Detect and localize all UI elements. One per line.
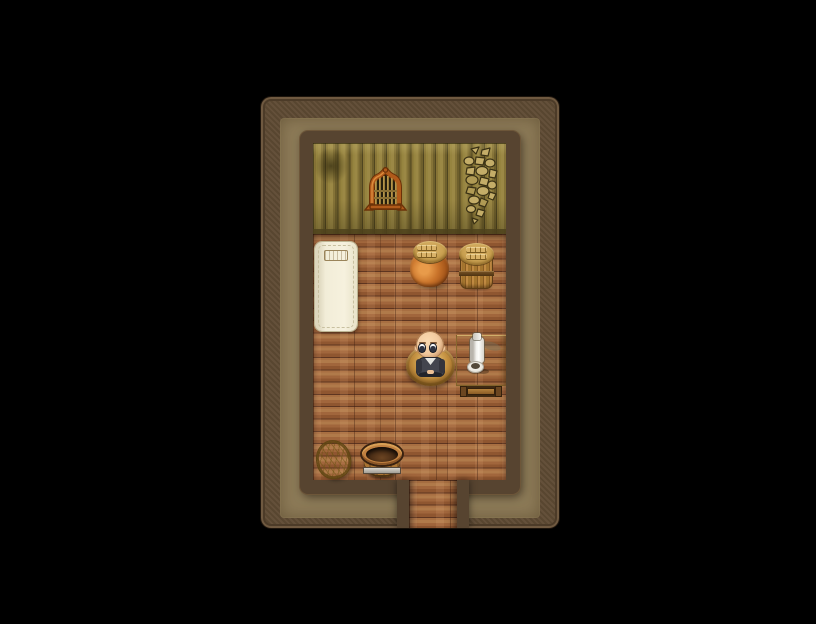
table-leg	[460, 386, 467, 397]
wooden-tub[interactable]	[362, 443, 402, 479]
tub-metal-band	[364, 468, 400, 473]
white-bottle[interactable]	[470, 337, 484, 363]
wall-crack-icon	[459, 146, 499, 226]
clay-pot[interactable]	[410, 241, 451, 291]
bowl-opening	[471, 363, 480, 369]
pot-lid-handle	[417, 245, 437, 250]
character-arm	[416, 359, 422, 373]
table-front	[460, 386, 502, 397]
table-stretcher	[468, 389, 494, 394]
character-body	[416, 357, 445, 377]
door-jamb-right	[457, 480, 469, 528]
bed[interactable]	[315, 242, 357, 331]
door-jamb-left	[397, 480, 409, 528]
character-eye	[430, 344, 436, 352]
white-bowl[interactable]	[467, 361, 484, 373]
doorway-floor[interactable]	[409, 480, 457, 528]
game-screen[interactable]	[0, 0, 816, 624]
character-hands	[427, 370, 434, 374]
tub-interior	[366, 447, 398, 462]
barrel[interactable]	[459, 243, 494, 291]
bottle-cap	[473, 333, 481, 340]
pot-lid-handle	[417, 252, 437, 257]
character-collar	[425, 358, 436, 365]
wall-stain	[314, 148, 348, 184]
barrel-lid-handle	[466, 247, 487, 252]
bed-pillow	[324, 250, 348, 261]
barrel-band	[459, 271, 494, 276]
character-eye	[419, 344, 425, 352]
table-leg	[495, 386, 502, 397]
barrel-lid-handle	[466, 254, 487, 259]
character[interactable]	[414, 330, 447, 380]
window-icon	[363, 166, 408, 211]
back-wall	[313, 143, 506, 234]
character-arm	[439, 359, 445, 373]
